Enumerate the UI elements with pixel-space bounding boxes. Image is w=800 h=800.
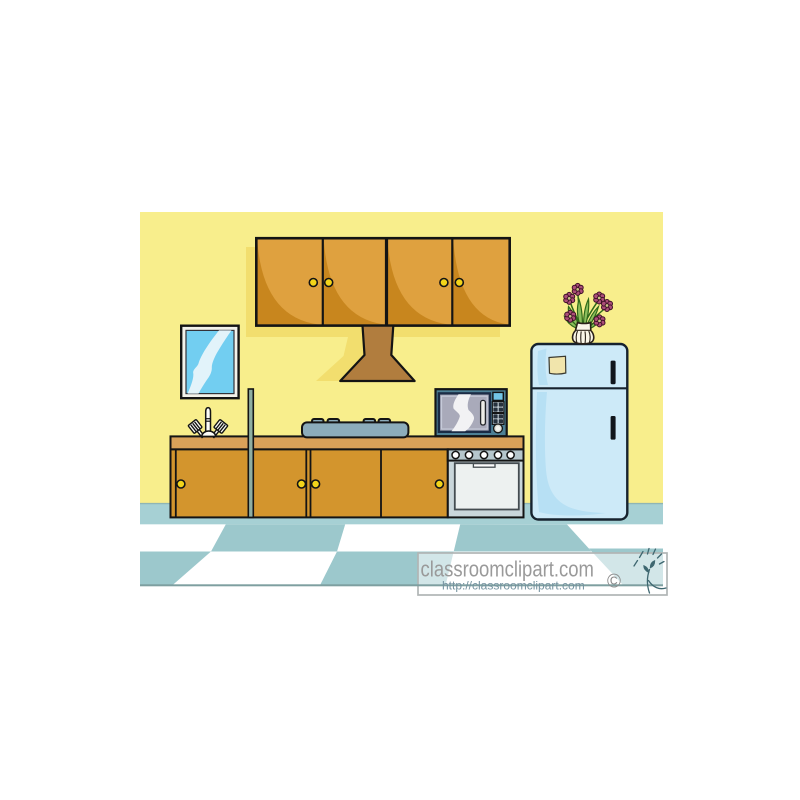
svg-text:©: © [607, 572, 621, 593]
svg-text:http://classroomclipart.com: http://classroomclipart.com [442, 579, 585, 593]
